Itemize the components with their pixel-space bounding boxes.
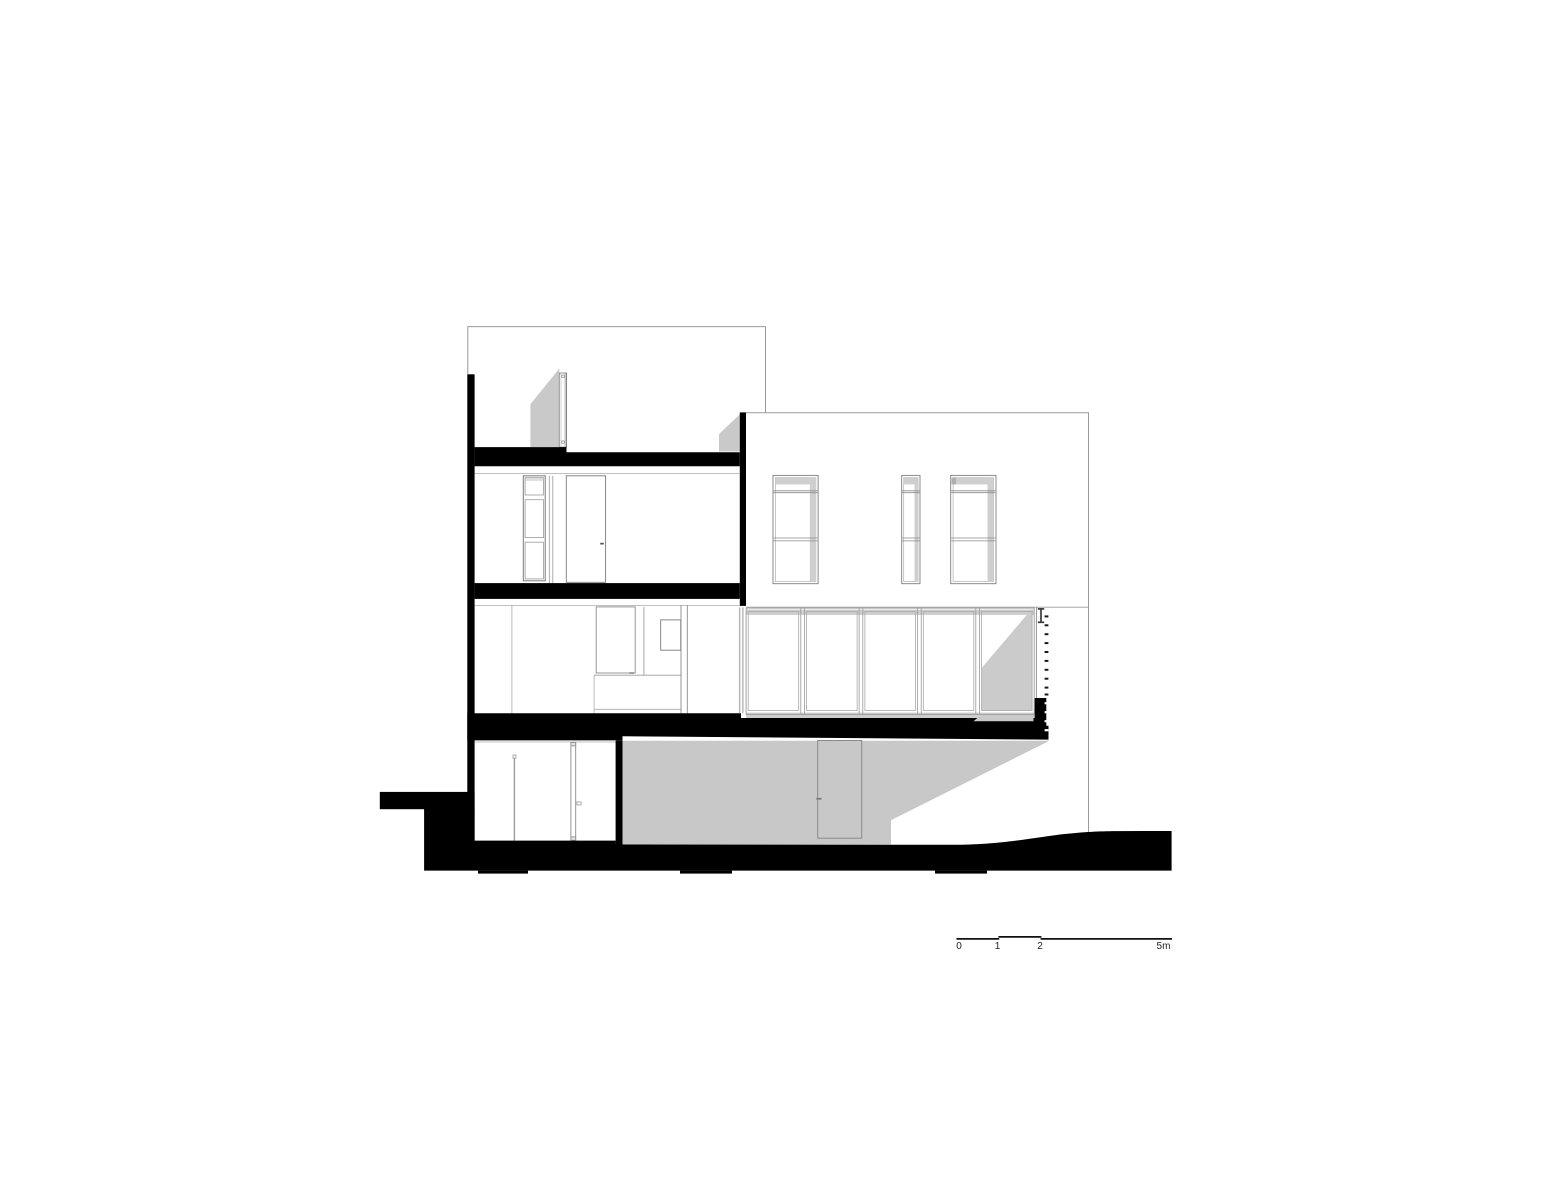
svg-text:5m: 5m [1157, 941, 1171, 952]
svg-text:0: 0 [956, 941, 962, 952]
svg-text:1: 1 [995, 941, 1001, 952]
svg-text:2: 2 [1037, 941, 1043, 952]
